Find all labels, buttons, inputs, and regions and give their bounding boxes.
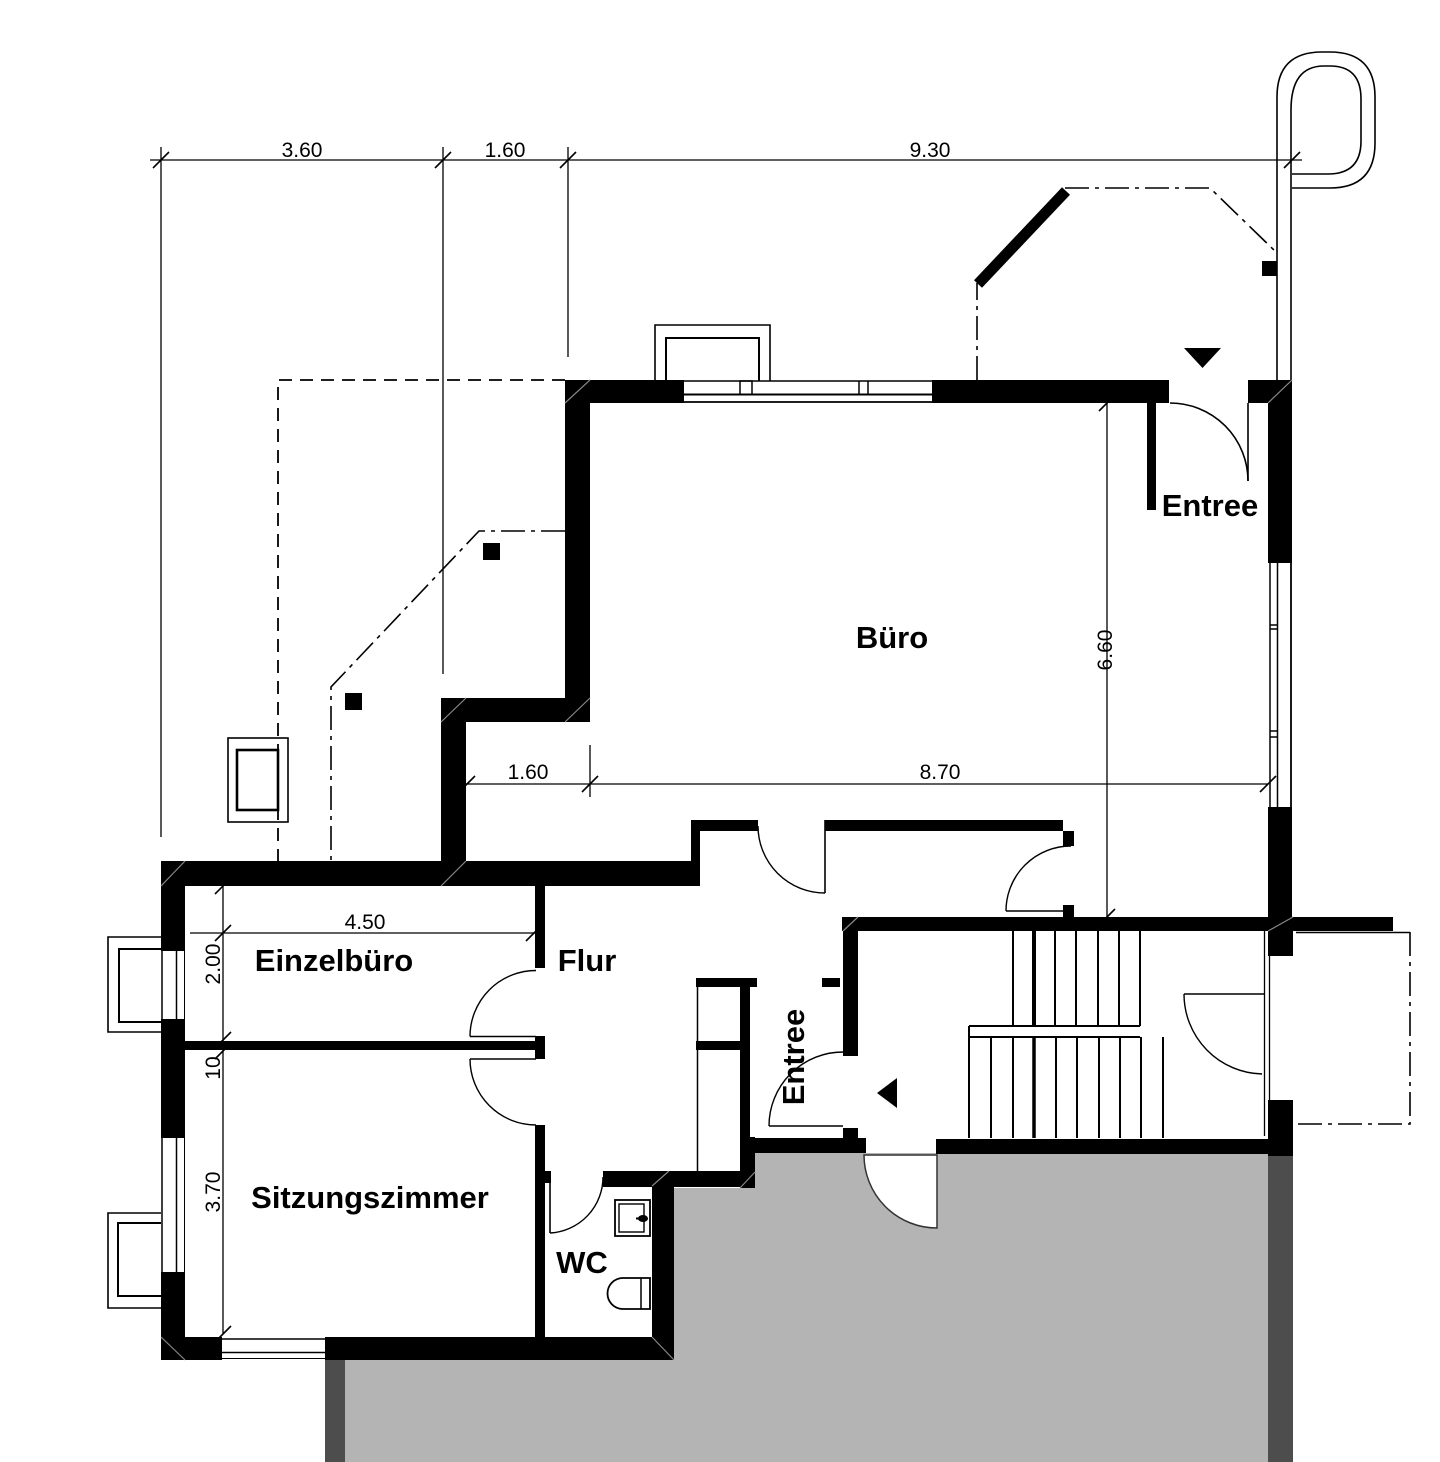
- svg-text:2.00: 2.00: [202, 944, 225, 985]
- svg-text:Entree: Entree: [776, 1009, 811, 1105]
- svg-text:6.60: 6.60: [1094, 630, 1117, 671]
- svg-text:4.50: 4.50: [345, 911, 386, 934]
- svg-text:Büro: Büro: [856, 620, 928, 655]
- svg-text:8.70: 8.70: [920, 761, 961, 784]
- svg-text:Entree: Entree: [1162, 488, 1258, 523]
- svg-text:3.70: 3.70: [202, 1172, 225, 1213]
- svg-text:Einzelbüro: Einzelbüro: [255, 943, 413, 978]
- svg-text:10: 10: [202, 1056, 225, 1079]
- svg-text:3.60: 3.60: [282, 139, 323, 162]
- svg-text:1.60: 1.60: [485, 139, 526, 162]
- svg-text:Flur: Flur: [558, 943, 617, 978]
- svg-text:Sitzungszimmer: Sitzungszimmer: [251, 1180, 489, 1215]
- svg-text:9.30: 9.30: [910, 139, 951, 162]
- svg-text:1.60: 1.60: [508, 761, 549, 784]
- svg-text:WC: WC: [556, 1245, 608, 1280]
